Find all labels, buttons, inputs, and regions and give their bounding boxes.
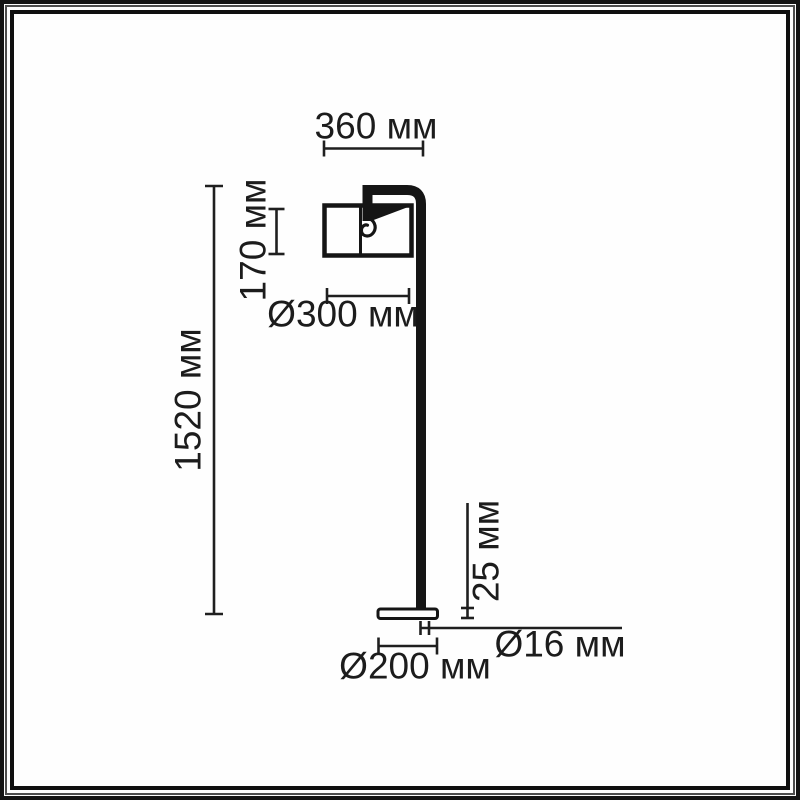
- label-shade-height: 170 мм: [235, 179, 272, 302]
- drawing-canvas: 360 мм 170 мм Ø300 мм 1520 мм 25 мм Ø16 …: [0, 0, 800, 800]
- label-shade-diameter: Ø300 мм: [267, 296, 419, 333]
- label-base-diameter: Ø200 мм: [339, 648, 491, 685]
- label-pole-diameter: Ø16 мм: [494, 626, 625, 663]
- lamp-body: [325, 190, 438, 619]
- base-plate: [378, 609, 438, 619]
- label-arm-reach: 360 мм: [315, 108, 438, 145]
- label-base-height: 25 мм: [468, 500, 505, 602]
- label-total-height: 1520 мм: [170, 328, 207, 471]
